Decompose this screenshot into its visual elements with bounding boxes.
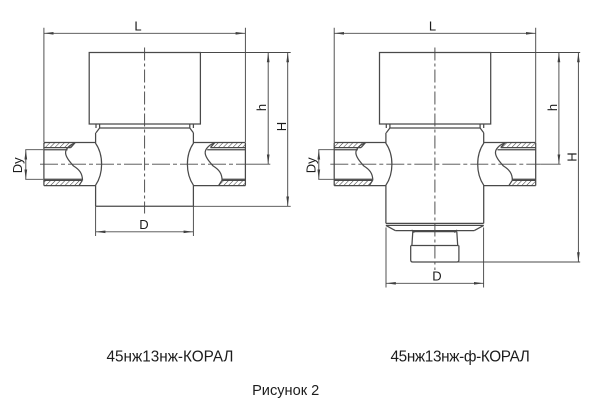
svg-text:H: H <box>274 122 289 131</box>
svg-text:Dy: Dy <box>10 157 25 173</box>
svg-text:L: L <box>134 19 141 34</box>
svg-text:h: h <box>545 104 560 111</box>
svg-text:h: h <box>254 104 269 111</box>
svg-text:45нж13нж-ф-КОРАЛ: 45нж13нж-ф-КОРАЛ <box>391 349 530 366</box>
svg-text:H: H <box>565 152 580 161</box>
svg-text:D: D <box>139 217 148 232</box>
svg-text:45нж13нж-КОРАЛ: 45нж13нж-КОРАЛ <box>107 349 234 366</box>
svg-text:Dy: Dy <box>303 157 318 173</box>
svg-text:Рисунок 2: Рисунок 2 <box>252 383 319 399</box>
svg-text:D: D <box>432 268 441 283</box>
svg-text:L: L <box>429 19 436 34</box>
